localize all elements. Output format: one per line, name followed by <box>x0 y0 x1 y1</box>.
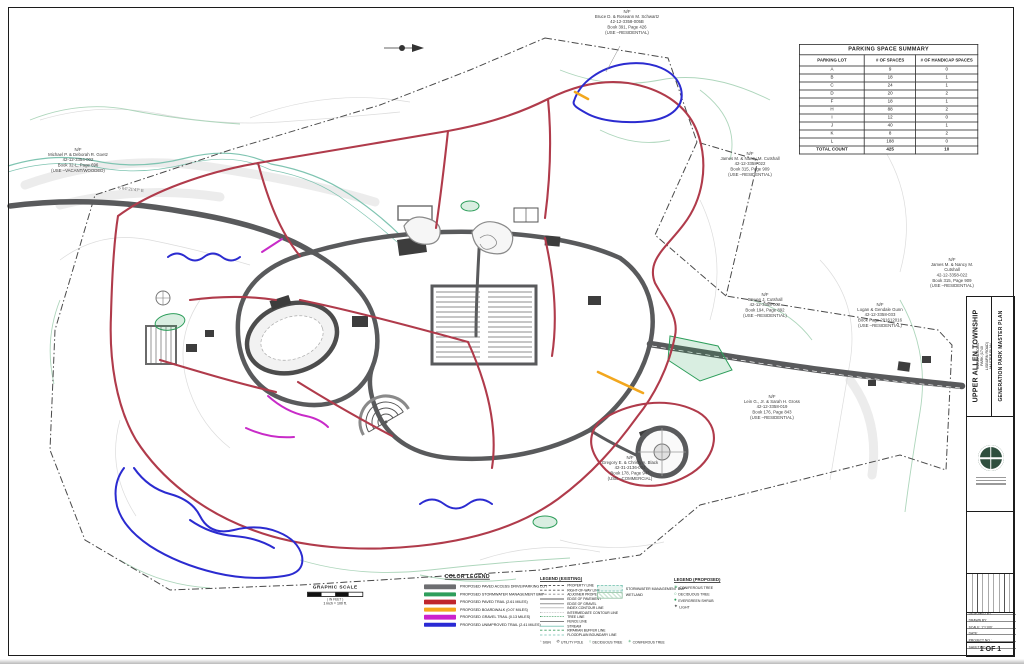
label-leader-line <box>606 46 620 72</box>
engineer-address-smudge <box>976 475 1006 486</box>
revisions-grid <box>967 573 1014 613</box>
parking-table-total-row: TOTAL COUNT42510 <box>799 146 977 154</box>
table-row: I120 <box>799 114 977 122</box>
table-row: D202 <box>799 90 977 98</box>
graphic-scale-equivalence: 1 inch = 100 ft. <box>302 601 368 605</box>
property-label-cutshall-east: N/F James M. & Nancy M. Cutshall 42-12-3… <box>926 258 978 289</box>
graphic-scale-title: GRAPHIC SCALE <box>302 585 368 590</box>
sheet-edge-shading <box>0 659 1024 664</box>
deciduous-tree-icon: ○ <box>674 592 677 597</box>
stormwater-bmp-swatch <box>597 585 623 591</box>
table-row: J401 <box>799 122 977 130</box>
engineer-logo <box>978 445 1004 471</box>
table-row: B181 <box>799 74 977 82</box>
swatch-stormwater-bmp <box>424 592 456 596</box>
title-block: UPPER ALLEN TOWNSHIP GENERATIONS PARK (1… <box>966 296 1015 657</box>
parking-table-header-row: PARKING LOT # OF SPACES # OF HANDICAP SP… <box>799 55 977 66</box>
table-row: L1880 <box>799 138 977 146</box>
legend-proposed: LEGEND (PROPOSED) ✳CONIFEROUS TREE ○DECI… <box>674 578 762 610</box>
legend-item: ✦LIGHT <box>674 604 762 610</box>
sheet-title: GENERATION PARK MASTER PLAN <box>998 310 1004 401</box>
north-arrow-icon <box>384 44 424 52</box>
sign-icon: ◦ <box>540 640 541 645</box>
coniferous-tree-icon: ✳ <box>674 585 678 590</box>
parking-space-summary-table: PARKING SPACE SUMMARY PARKING LOT # OF S… <box>799 44 978 154</box>
boardwalk-segments <box>575 92 643 393</box>
property-label-black: N/F Gregory E. & Christy A. Black 42-31-… <box>602 456 658 482</box>
deciduous-tree-icon: ○ <box>589 640 591 645</box>
swatch-unimproved-trail <box>424 622 456 626</box>
coniferous-tree-icon: ✳ <box>628 640 631 645</box>
legend-item: FLOODPLAIN BOUNDARY LINE <box>540 633 652 637</box>
utility-pole-icon: ⊘ <box>556 640 559 645</box>
oval-track <box>235 284 346 385</box>
graphic-scale-bar <box>307 592 363 597</box>
property-label-cutshall-north: N/F James M. & Nancy M. Cutshall 42-12-3… <box>720 152 779 178</box>
property-label-goetz: N/F Michael P. & Deborah R. Goetz 42-12-… <box>48 148 108 174</box>
swatch-paved-access <box>424 584 456 588</box>
field-scale: SCALE: 1"=100' <box>967 625 1016 629</box>
table-row: A90 <box>799 66 977 74</box>
table-row: K82 <box>799 130 977 138</box>
sport-courts <box>514 208 538 222</box>
title-block-fields: DESIGNED BY: DRAWN BY: SCALE: 1"=100' DA… <box>967 611 1014 646</box>
legend-existing-title: LEGEND (EXISTING) <box>540 577 652 582</box>
table-row: C241 <box>799 82 977 90</box>
property-label-gunn: N/F Logan & Gendale Gunn 42-12-3358-033 … <box>857 303 902 329</box>
table-row: H882 <box>799 106 977 114</box>
parking-table-title: PARKING SPACE SUMMARY <box>799 44 977 54</box>
drawing-sheet: S 64°21'47" E N/F Bruce D. & Roseann M. … <box>0 0 1024 664</box>
light-icon: ✦ <box>674 604 678 609</box>
graphic-scale: GRAPHIC SCALE ( IN FEET ) 1 inch = 100 f… <box>302 585 368 605</box>
sheet-number: 1 OF 1 <box>967 642 1014 656</box>
property-label-gross: N/F Lein G., Jr. & Sarah H. Gross 42-12-… <box>744 395 800 421</box>
swatch-paved-trail <box>424 600 456 604</box>
swatch-gravel-trail <box>424 615 456 619</box>
legend-symbol-row: ◦SIGN ⊘UTILITY POLE ○DECIDUOUS TREE ✳CON… <box>540 640 652 645</box>
wetland-swatch <box>597 592 623 598</box>
field-designed-by: DESIGNED BY: <box>967 611 1016 615</box>
legend-proposed-title: LEGEND (PROPOSED) <box>674 578 762 583</box>
property-label-schwartz: N/F Bruce D. & Roseann M. Schwartz 42-12… <box>595 10 659 36</box>
field-date: DATE: <box>967 631 1016 635</box>
swatch-boardwalk <box>424 607 456 611</box>
evergreen-shrub-icon: ● <box>674 598 677 603</box>
field-drawn-by: DRAWN BY: <box>967 618 1016 622</box>
property-label-steven-cutshall: N/F Steven J. Cutshall 42-12-3358-002 Bo… <box>743 293 787 319</box>
table-row: F181 <box>799 98 977 106</box>
